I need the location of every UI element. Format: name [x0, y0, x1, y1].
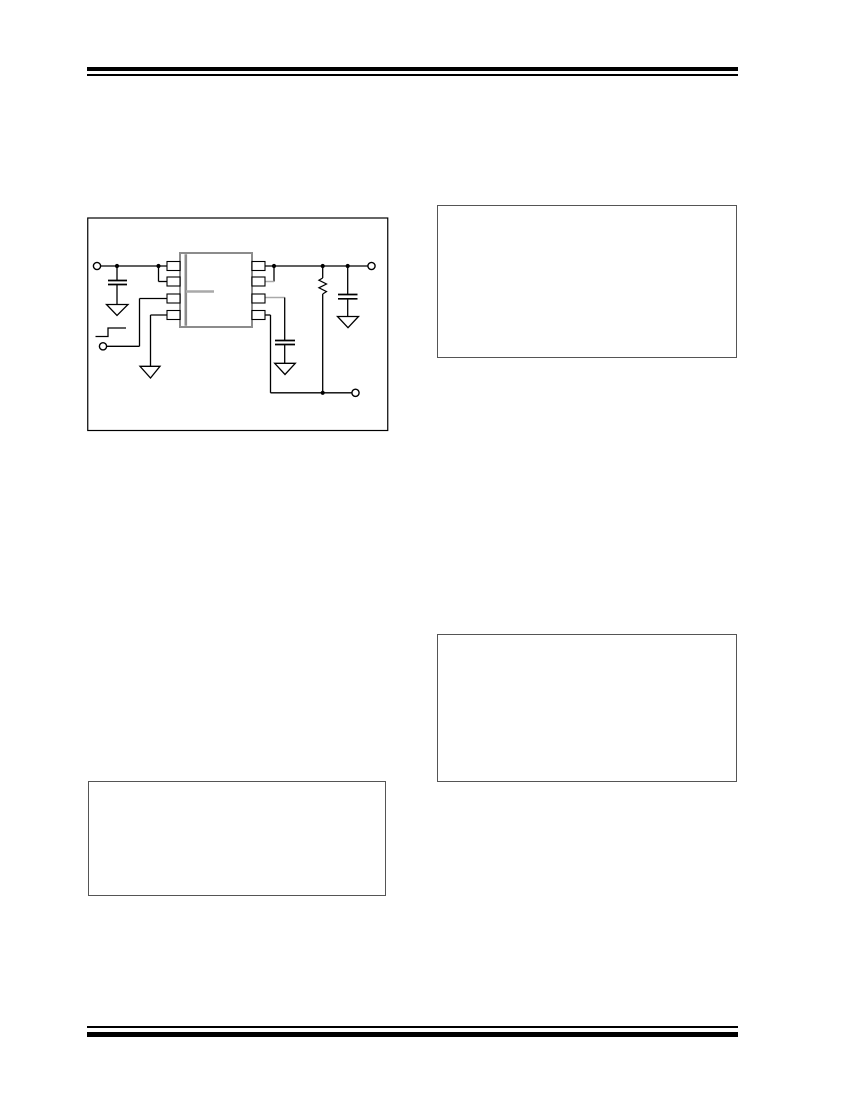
junction-dot	[346, 264, 350, 268]
ic-pin-7	[252, 277, 265, 286]
header-rule-thin	[87, 74, 738, 76]
ic-pin-6	[252, 294, 265, 303]
ground-symbol-bypass	[275, 363, 296, 374]
footer-rule-thick	[87, 1032, 738, 1037]
ic-pin-2	[167, 277, 180, 286]
ic-pin-4	[167, 311, 180, 320]
footer-rule-thin	[87, 1026, 738, 1028]
ground-symbol-gnd-pin	[140, 366, 160, 378]
ic-body	[180, 253, 252, 327]
ground-symbol-input	[107, 305, 129, 316]
ic-pin-5	[252, 311, 265, 320]
ic-pin-3	[167, 294, 180, 303]
header-rule-thick	[87, 67, 738, 72]
junction-dot	[156, 264, 160, 268]
placeholder-box-top-right	[437, 205, 737, 358]
input-terminal	[93, 262, 100, 269]
enable-terminal	[99, 343, 106, 350]
placeholder-box-middle-right	[437, 634, 737, 782]
resistor-zigzag	[319, 278, 327, 294]
ic-pin-1	[167, 262, 180, 271]
document-page	[0, 0, 849, 1099]
ic-pin-8	[252, 262, 265, 271]
junction-dot	[321, 391, 325, 395]
step-input-symbol	[96, 328, 127, 337]
ground-symbol-output	[338, 317, 359, 328]
junction-dot	[115, 264, 119, 268]
junction-dot	[272, 264, 276, 268]
junction-dot	[321, 264, 325, 268]
application-circuit-figure	[87, 217, 389, 432]
sense-terminal	[352, 389, 359, 396]
placeholder-box-bottom-left	[88, 781, 386, 896]
output-terminal	[368, 262, 375, 269]
